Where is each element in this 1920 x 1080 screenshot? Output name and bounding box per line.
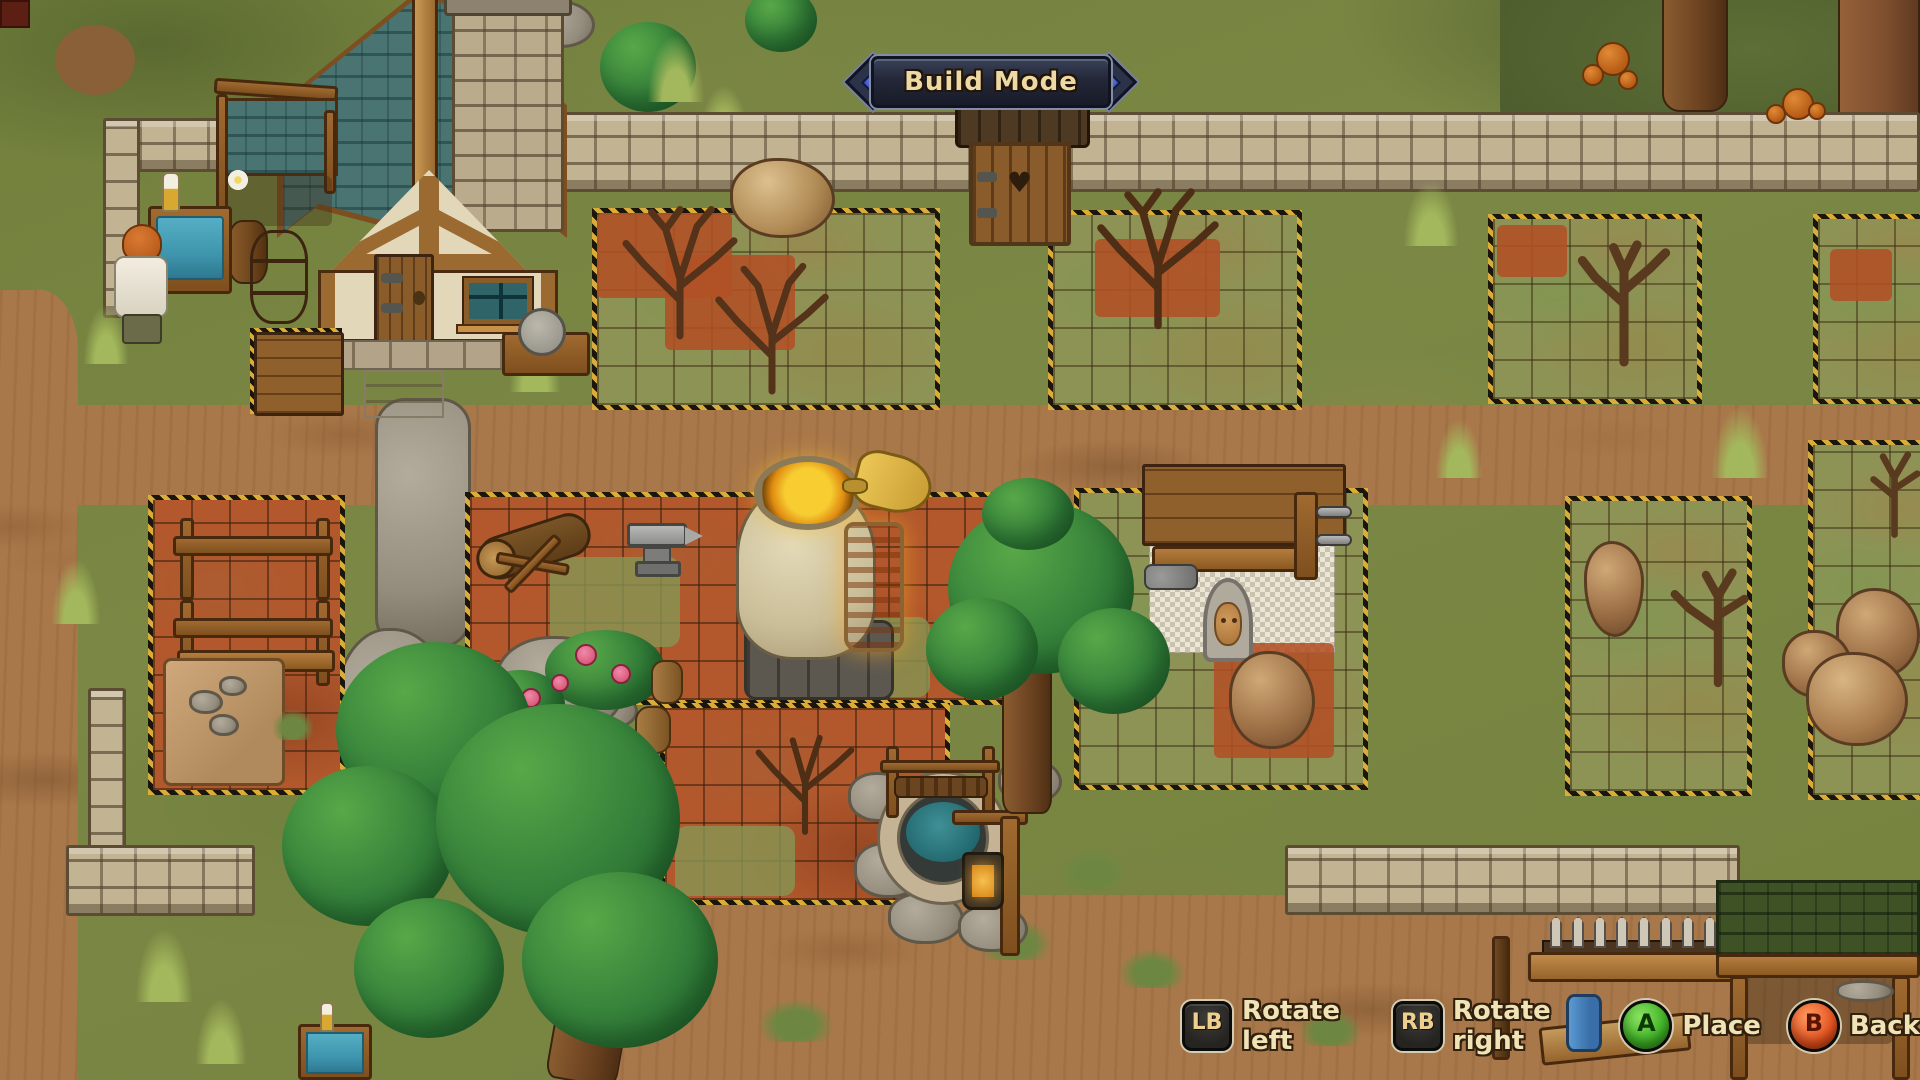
outhouse-hinge bbox=[977, 208, 997, 218]
shed-roof bbox=[1716, 880, 1920, 958]
door-hinge bbox=[381, 273, 403, 283]
zone-grid bbox=[1493, 219, 1697, 399]
standing-rock bbox=[1584, 541, 1644, 637]
canopy-blob bbox=[1058, 608, 1170, 714]
anvil-top bbox=[627, 523, 687, 547]
zone-grid bbox=[1818, 219, 1920, 399]
mushroom bbox=[1582, 64, 1604, 86]
boulder bbox=[1806, 652, 1908, 746]
mushroom-cluster bbox=[1582, 40, 1652, 98]
hint-rotate-right: RB Rotate right bbox=[1393, 996, 1594, 1056]
picket bbox=[1594, 916, 1606, 948]
bellows-tip bbox=[842, 478, 868, 494]
hint-place: A Place bbox=[1620, 1000, 1761, 1052]
picket bbox=[1682, 916, 1694, 948]
grass-tuft bbox=[1712, 408, 1768, 478]
canopy-blob bbox=[354, 898, 504, 1038]
fence-beam bbox=[1528, 952, 1738, 982]
rb-button-icon[interactable]: RB bbox=[1393, 1001, 1443, 1051]
dead-bush bbox=[692, 258, 852, 398]
chimney-cap bbox=[444, 0, 572, 16]
dirt-patch bbox=[55, 25, 135, 95]
wooden-crate[interactable] bbox=[250, 328, 342, 414]
build-zone-top-right[interactable] bbox=[1488, 214, 1702, 404]
tree-center bbox=[920, 470, 1150, 820]
hint-back: B Back bbox=[1788, 1000, 1920, 1052]
vise-post bbox=[1294, 492, 1318, 580]
build-zone-top-far-right[interactable] bbox=[1813, 214, 1920, 404]
barrel[interactable] bbox=[250, 230, 308, 324]
grass-tuft bbox=[196, 1000, 246, 1064]
idol-eye bbox=[1221, 618, 1226, 623]
character-pants bbox=[122, 314, 162, 344]
ridge-beam bbox=[412, 0, 438, 196]
weed-patch bbox=[760, 1000, 832, 1042]
carpenter-workbench[interactable] bbox=[1142, 452, 1372, 617]
zone-grid bbox=[597, 213, 935, 405]
washstand[interactable] bbox=[298, 1018, 372, 1080]
canopy-blob bbox=[926, 598, 1038, 700]
lantern bbox=[962, 852, 1004, 910]
picket bbox=[1660, 916, 1672, 948]
hint-label: Rotate right bbox=[1453, 996, 1593, 1056]
rock bbox=[730, 158, 835, 238]
stone-wall-bottom-left-v bbox=[88, 688, 126, 862]
cobblestone-path bbox=[375, 398, 471, 648]
crate-face bbox=[254, 332, 344, 416]
grindstone-wheel bbox=[518, 308, 566, 356]
heart-cutout-icon: ♥ bbox=[1007, 166, 1032, 199]
stone-wall-bottom-left-h bbox=[66, 845, 255, 916]
red-soil-patch bbox=[1830, 249, 1892, 301]
stone-wall-bottom-right bbox=[1285, 845, 1740, 915]
shed-fascia bbox=[1716, 954, 1920, 978]
forest-trunk bbox=[1662, 0, 1728, 112]
outhouse-hinge bbox=[977, 172, 997, 182]
door-hinge bbox=[381, 303, 403, 313]
hint-label: Place bbox=[1682, 1011, 1761, 1041]
dead-tree bbox=[1847, 427, 1920, 547]
zone-grid bbox=[1570, 501, 1747, 791]
character[interactable] bbox=[110, 224, 174, 354]
character-shirt bbox=[114, 256, 168, 318]
grass-tuft bbox=[648, 36, 704, 102]
corner-object bbox=[0, 0, 30, 28]
vise-screw bbox=[1316, 534, 1352, 546]
anvil[interactable] bbox=[625, 511, 707, 591]
mushroom bbox=[1808, 102, 1826, 120]
idol-eye bbox=[1232, 618, 1237, 623]
b-button-icon[interactable]: B bbox=[1788, 1000, 1840, 1052]
bottle bbox=[320, 1002, 334, 1032]
controller-hints: LB Rotate left RB Rotate right A Place B… bbox=[1182, 996, 1920, 1056]
lb-button-icon[interactable]: LB bbox=[1182, 1001, 1232, 1051]
tarp-stones bbox=[189, 690, 223, 714]
grass-tuft bbox=[1436, 420, 1482, 478]
chimney bbox=[452, 0, 564, 232]
lean-to-roof bbox=[222, 98, 338, 176]
washstand-water bbox=[306, 1032, 364, 1074]
picket bbox=[1704, 916, 1716, 948]
build-mode-banner: Build Mode bbox=[853, 56, 1129, 108]
dead-bush bbox=[1083, 183, 1233, 333]
timber-rack[interactable] bbox=[180, 518, 194, 600]
door-amulet bbox=[413, 291, 425, 305]
furnace-mouth bbox=[754, 456, 862, 530]
outhouse-body: ♥ bbox=[969, 142, 1071, 246]
tarp-stones bbox=[209, 714, 239, 736]
house-door[interactable] bbox=[374, 254, 434, 350]
picket-fence bbox=[1528, 912, 1740, 990]
mushroom bbox=[1618, 70, 1638, 90]
red-soil-patch bbox=[1497, 225, 1567, 277]
picket bbox=[1550, 916, 1562, 948]
flower bbox=[228, 170, 248, 190]
mushroom-cluster bbox=[1766, 88, 1832, 140]
tree-bottom-left bbox=[270, 620, 710, 1080]
dirt-road-left bbox=[0, 290, 78, 1080]
hand-tool bbox=[1144, 564, 1198, 590]
bottle bbox=[162, 172, 180, 212]
dead-tree bbox=[1658, 509, 1778, 737]
picket bbox=[1616, 916, 1628, 948]
anvil-base bbox=[635, 561, 681, 577]
boulder-cluster bbox=[1782, 588, 1920, 746]
stone-steps bbox=[364, 370, 444, 418]
vise-screw bbox=[1316, 506, 1352, 518]
picket bbox=[1638, 916, 1650, 948]
lantern-glass bbox=[972, 865, 994, 897]
timber-rack-beam bbox=[173, 536, 333, 556]
dead-tree bbox=[1559, 203, 1689, 391]
furnace[interactable] bbox=[726, 460, 921, 715]
rock bbox=[1229, 651, 1315, 749]
furnace-firebox bbox=[844, 522, 904, 652]
build-zone-top-left[interactable] bbox=[592, 208, 940, 410]
banner-bar: Build Mode bbox=[871, 56, 1111, 108]
build-zone-far-right[interactable] bbox=[1565, 496, 1752, 796]
timber-rack[interactable] bbox=[316, 518, 330, 600]
canopy-blob bbox=[522, 872, 718, 1048]
grass-tuft bbox=[1404, 182, 1458, 246]
grass-tuft bbox=[52, 560, 100, 624]
weed-patch bbox=[1120, 950, 1184, 988]
game-viewport: ♥ bbox=[0, 0, 1920, 1080]
mushroom bbox=[1766, 104, 1786, 124]
picket bbox=[1572, 916, 1584, 948]
hint-label: Rotate left bbox=[1242, 996, 1366, 1056]
hint-rotate-left: LB Rotate left bbox=[1182, 996, 1366, 1056]
canopy-blob bbox=[982, 478, 1074, 550]
grass-tuft bbox=[136, 930, 192, 1002]
anvil-horn bbox=[685, 527, 703, 545]
hint-label: Back bbox=[1850, 1011, 1920, 1041]
grindstone[interactable] bbox=[498, 304, 594, 390]
a-button-icon[interactable]: A bbox=[1620, 1000, 1672, 1052]
mode-banner-label: Build Mode bbox=[904, 67, 1078, 97]
tarp-stones bbox=[219, 676, 247, 696]
outhouse[interactable]: ♥ bbox=[955, 96, 1090, 256]
